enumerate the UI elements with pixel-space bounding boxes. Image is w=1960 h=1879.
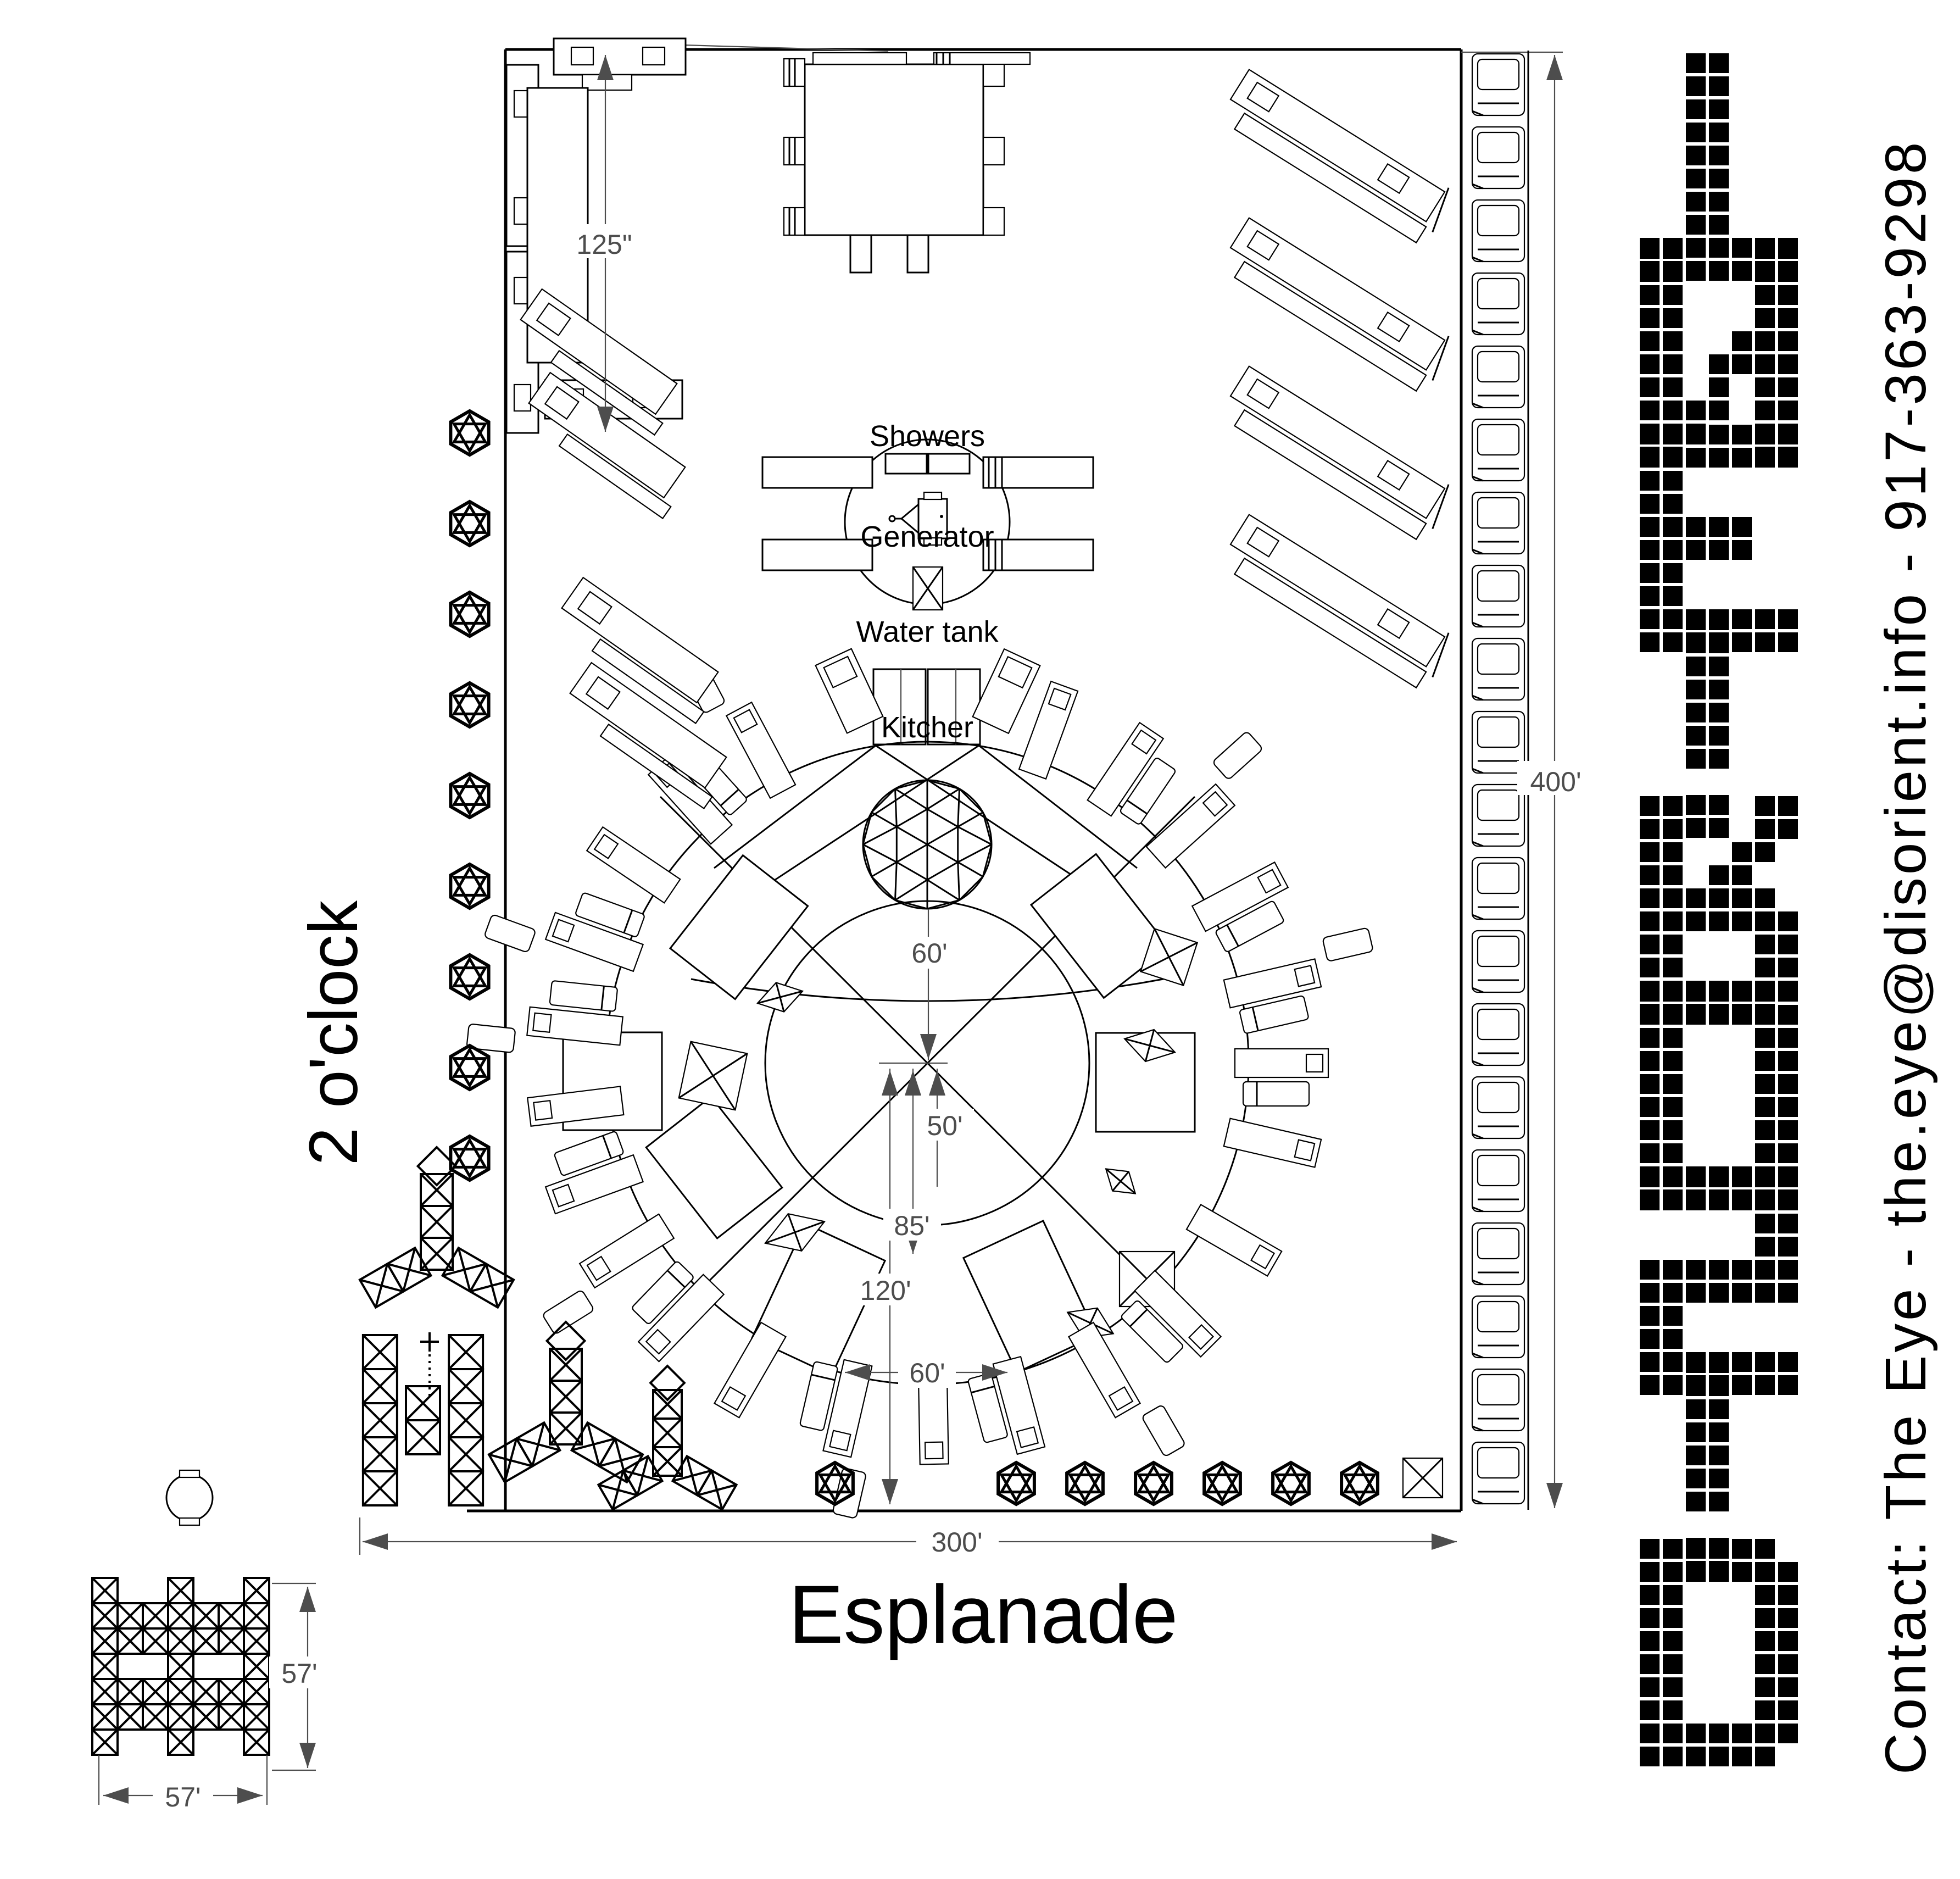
truss-module: [143, 1603, 168, 1628]
truss-module: [168, 1628, 193, 1654]
vehicle: [1472, 273, 1524, 335]
truss-module: [363, 1403, 397, 1437]
dimension-arrow: [363, 1533, 388, 1550]
truss-module: [118, 1628, 143, 1654]
truss-module: [168, 1654, 193, 1679]
vehicle: [1472, 1077, 1524, 1138]
truss-module: [92, 1603, 118, 1628]
vehicle: [1472, 492, 1524, 554]
truss-module: [168, 1603, 193, 1628]
y-truss-tower: [360, 1147, 514, 1308]
hexagram-marker: [1341, 1463, 1378, 1504]
vehicle: [1472, 711, 1524, 773]
hexagram-marker: [450, 683, 488, 727]
hexagram-marker: [450, 592, 488, 636]
truss-module: [168, 1704, 193, 1730]
dimension-arrow: [929, 1070, 945, 1096]
dim-outer-radius: 120': [860, 1275, 911, 1306]
truss-module: [698, 1470, 737, 1509]
vehicle: [1472, 200, 1524, 262]
trailer-pair: [1218, 510, 1457, 692]
truss-module: [193, 1628, 219, 1654]
truss-module: [449, 1335, 483, 1369]
hexagram-marker: [450, 1046, 488, 1089]
vehicle: [1472, 419, 1524, 481]
camper-spoke: [1088, 722, 1187, 832]
dimension-arrow: [1432, 1533, 1457, 1550]
vehicle: [1472, 565, 1524, 627]
vehicle: [1472, 858, 1524, 919]
h-truss-cluster: [363, 1332, 483, 1505]
vehicle: [1472, 1223, 1524, 1285]
truss-module: [421, 1206, 453, 1238]
truss-module: [244, 1603, 269, 1628]
camper-spoke: [587, 827, 680, 903]
truss-module: [363, 1335, 397, 1369]
truss-module: [244, 1578, 269, 1603]
hexagram-marker: [1135, 1463, 1172, 1504]
truss-module: [550, 1381, 582, 1413]
truss-module: [653, 1390, 682, 1419]
compass-circle: [166, 1470, 213, 1525]
vehicle: [1472, 346, 1524, 408]
hexagram-marker: [450, 502, 488, 546]
logo-letter: [1640, 53, 1798, 281]
truss-module: [449, 1369, 483, 1403]
truss-module: [168, 1730, 193, 1755]
truss-module: [653, 1419, 682, 1447]
truss-module: [363, 1471, 397, 1505]
truss-module: [406, 1386, 440, 1420]
generator-label: Generator: [860, 520, 994, 553]
camper-spoke: [1019, 681, 1078, 779]
truss-module: [219, 1679, 244, 1704]
dim-inner-radius: 85': [894, 1210, 929, 1241]
vehicle: [1472, 1004, 1524, 1065]
truss-module: [470, 1264, 514, 1307]
dimension-arrow: [299, 1587, 316, 1612]
left-diagonal-trailers: [510, 289, 735, 808]
x-tent: [1403, 1458, 1443, 1498]
truss-module: [244, 1730, 269, 1755]
truss-module: [363, 1437, 397, 1471]
vehicle: [1472, 1442, 1524, 1504]
water-tank-label: Water tank: [856, 615, 999, 648]
hexagram-marker: [1273, 1463, 1309, 1504]
y-truss-tower: [489, 1322, 643, 1482]
camper-spoke: [1235, 1049, 1328, 1106]
stage-structure: [784, 53, 1030, 273]
truss-module: [143, 1679, 168, 1704]
truss-module: [168, 1679, 193, 1704]
hexagram-marker: [450, 955, 488, 999]
hexagram-marker: [450, 411, 488, 455]
camper-spoke: [484, 865, 653, 988]
dim-center-radius: 50': [927, 1110, 962, 1141]
dim-plot-height: 400': [1530, 766, 1582, 797]
water-tank-icon: [913, 567, 943, 610]
truss-module: [219, 1603, 244, 1628]
dim-ring-gap: 60': [909, 1358, 945, 1388]
dim-dome-to-center: 60': [911, 938, 947, 969]
truss-module: [449, 1471, 483, 1505]
truss-module: [550, 1349, 582, 1381]
kite-tent: [1098, 1159, 1143, 1203]
hexagram-marker: [450, 774, 488, 818]
truss-module: [449, 1403, 483, 1437]
truss-module: [421, 1174, 453, 1206]
truss-module: [118, 1704, 143, 1730]
camper-spoke: [1220, 927, 1385, 1036]
kitchen-label: Kitcher: [881, 711, 973, 744]
dim-plot-width: 300': [932, 1527, 983, 1558]
camper-spoke: [530, 1214, 683, 1335]
truss-module: [449, 1437, 483, 1471]
truss-module: [118, 1679, 143, 1704]
truss-module: [219, 1628, 244, 1654]
camper-spoke: [1187, 1204, 1282, 1276]
dimension-arrow: [237, 1787, 263, 1804]
vehicle: [1472, 1150, 1524, 1211]
truss-module: [244, 1704, 269, 1730]
truss-module: [244, 1654, 269, 1679]
stage-leg: [907, 235, 928, 273]
hexagram-marker: [998, 1463, 1034, 1504]
dimension-arrow: [1546, 1483, 1563, 1508]
truss-module: [92, 1654, 118, 1679]
vehicle: [1472, 54, 1524, 115]
truss-module: [360, 1264, 403, 1307]
disorient-logo: [1640, 53, 1798, 1766]
truss-module: [406, 1420, 440, 1454]
dimension-arrow: [103, 1787, 129, 1804]
camper-spoke: [1192, 862, 1301, 957]
truss-module: [244, 1628, 269, 1654]
truss-module: [143, 1704, 168, 1730]
kite-tent: [754, 976, 806, 1018]
hexagram-marker: [450, 864, 488, 908]
vehicle: [1472, 931, 1524, 992]
camper-spoke: [782, 1353, 890, 1519]
truss-module: [92, 1628, 118, 1654]
hexagram-marker: [1204, 1463, 1240, 1504]
hexagram-marker: [450, 1136, 488, 1180]
stage-leg: [850, 235, 871, 273]
truss-module: [168, 1578, 193, 1603]
y-truss-tower: [598, 1366, 736, 1509]
vehicle: [1472, 127, 1524, 188]
vehicle: [1472, 1296, 1524, 1358]
truss-module: [118, 1603, 143, 1628]
dim-truss-width: 57': [165, 1782, 201, 1813]
camper-spoke: [618, 1255, 724, 1362]
showers-label: Showers: [870, 420, 985, 453]
truss-module: [143, 1628, 168, 1654]
dim-truss-height: 57': [281, 1658, 317, 1689]
truss-module: [489, 1438, 532, 1482]
truss-grid-57: [92, 1578, 269, 1755]
truss-module: [92, 1730, 118, 1755]
street-esplanade: Esplanade: [789, 1568, 1178, 1660]
truss-module: [193, 1603, 219, 1628]
diagonal-trailer-pairs: [1218, 65, 1457, 692]
hexagram-marker: [1067, 1463, 1103, 1504]
truss-module: [92, 1679, 118, 1704]
x-tent: [679, 1042, 748, 1110]
camper-spoke: [536, 1128, 643, 1214]
camper-spoke: [714, 1322, 786, 1417]
trailer-pair: [1218, 213, 1457, 396]
truss-module: [363, 1369, 397, 1403]
camper-spoke: [1224, 1119, 1321, 1168]
site-plan-canvas: 125" 400' 300' 60' 50' 85' 120' 60' 57' …: [0, 0, 1960, 1879]
dim-stage-offset: 125": [576, 229, 632, 260]
dimension-arrow: [882, 1479, 898, 1504]
truss-module: [219, 1704, 244, 1730]
tent-markers: [679, 929, 1443, 1498]
street-2oclock: 2 o'clock: [296, 900, 372, 1165]
vehicle: [1472, 638, 1524, 700]
contact-info: Contact: The Eye - the.eye@disorient.inf…: [1874, 140, 1938, 1775]
dimension-arrow: [1546, 55, 1563, 80]
truss-module: [244, 1679, 269, 1704]
truss-module: [92, 1704, 118, 1730]
vehicle: [1472, 1369, 1524, 1431]
truss-module: [92, 1578, 118, 1603]
trailer-pair: [1218, 65, 1457, 247]
vehicle: [1472, 785, 1524, 846]
trailer-pair: [1218, 362, 1457, 544]
dimension-arrow: [882, 1070, 898, 1096]
geodesic-dome: [863, 780, 992, 909]
truss-module: [193, 1704, 219, 1730]
truss-module: [193, 1679, 219, 1704]
dimension-arrow: [299, 1743, 316, 1768]
